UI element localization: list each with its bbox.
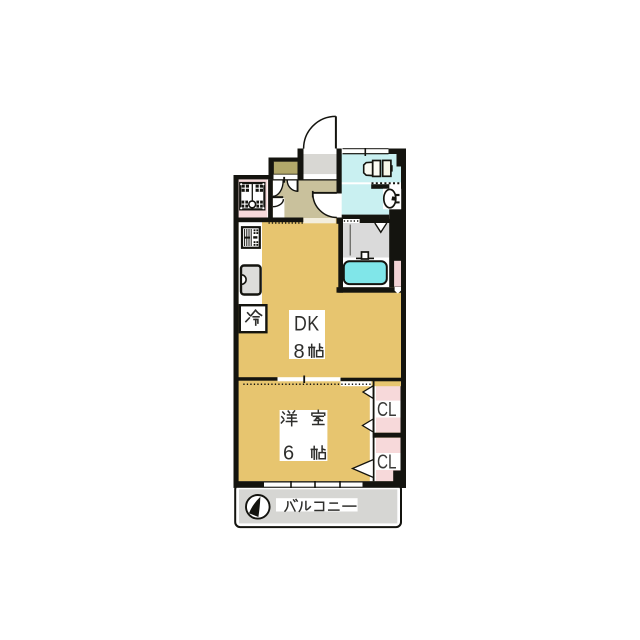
svg-text:6: 6 [283,443,294,465]
svg-text:CL: CL [377,399,397,421]
svg-text:CL: CL [377,452,397,474]
svg-text:8: 8 [294,341,305,363]
svg-text:DK: DK [294,313,320,336]
